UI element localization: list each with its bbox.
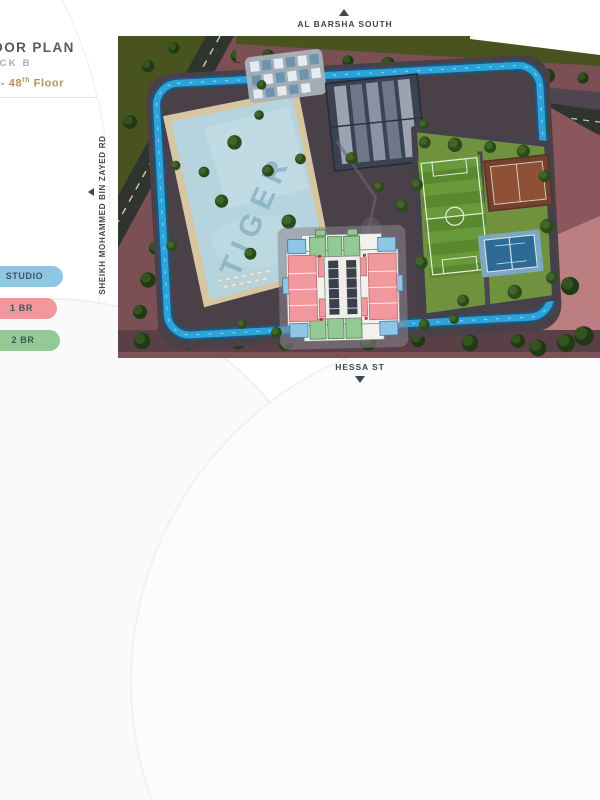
- floor-plan-panel: FLOOR PLAN BLOCK B 1st - 48th Floor: [0, 40, 97, 98]
- legend-studio-pill[interactable]: STUDIO: [0, 266, 63, 287]
- floor-sep: -: [0, 78, 9, 90]
- road-label-hessa-st: HESSA ST: [295, 362, 425, 372]
- legend-2br-pill[interactable]: 2 BR: [0, 330, 60, 351]
- road-label-sheikh-mohammed-bin-zayed: SHEIKH MOHAMMED BIN ZAYED RD: [98, 130, 110, 300]
- block-subtitle: BLOCK B: [0, 58, 97, 69]
- site-map-art: TIGER: [118, 36, 600, 358]
- legend-1br-pill[interactable]: 1 BR: [0, 298, 57, 319]
- west-arrow-icon: [88, 188, 94, 196]
- site-map: TIGER: [118, 36, 600, 358]
- development-site: TIGER: [144, 36, 563, 358]
- tower-floor-plate: [277, 225, 408, 350]
- floor-to: 48: [9, 78, 22, 90]
- floor-suffix: Floor: [30, 78, 64, 90]
- north-arrow-icon: [339, 9, 349, 16]
- tennis-court: [478, 229, 544, 277]
- road-label-al-barsha-south: AL BARSHA SOUTH: [255, 19, 435, 29]
- clubhouse-building: [326, 74, 427, 171]
- floor-range: 1st - 48th Floor: [0, 77, 97, 98]
- clay-court: [484, 155, 553, 211]
- cabana-deck: [244, 48, 327, 103]
- unit-legend: STUDIO 1 BR 2 BR: [0, 266, 63, 362]
- floor-to-sup: th: [22, 77, 30, 84]
- south-arrow-icon: [355, 376, 365, 383]
- page-title: FLOOR PLAN: [0, 40, 97, 55]
- tower-core: [324, 256, 362, 319]
